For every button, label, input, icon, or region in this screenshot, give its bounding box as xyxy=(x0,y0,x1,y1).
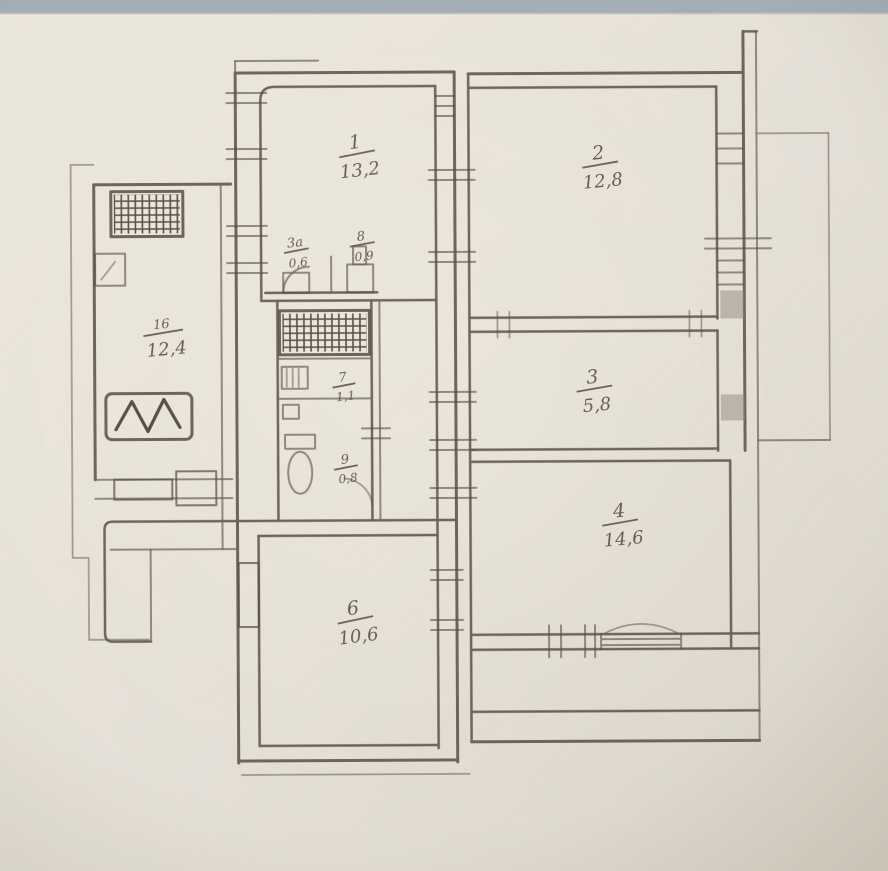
room-number: 3 xyxy=(585,366,599,389)
photographed-floor-plan: 1 13,2 2 12,8 3 5,8 4 14,6 6 10,6 16 12,… xyxy=(0,0,888,871)
room-number: 4 xyxy=(611,500,626,523)
room-area: 12,8 xyxy=(582,169,624,194)
room-number: 2 xyxy=(590,142,605,165)
ventilation-shaft-hatch xyxy=(111,191,183,236)
room-number: 1 xyxy=(348,131,362,154)
room-area: 12,4 xyxy=(146,337,188,362)
room-area: 0,9 xyxy=(354,248,375,264)
room-area: 5,8 xyxy=(582,394,612,418)
room-area: 14,6 xyxy=(603,527,645,552)
room-area: 1,1 xyxy=(335,388,356,404)
photo-background-strip xyxy=(0,0,888,13)
room-number: 8 xyxy=(356,229,366,245)
floor-plan: 1 13,2 2 12,8 3 5,8 4 14,6 6 10,6 16 12,… xyxy=(0,0,888,871)
room-number: 16 xyxy=(153,317,171,333)
kitchen-shaft-hatch xyxy=(279,310,369,354)
room-area: 0,8 xyxy=(338,470,359,486)
room-area: 0,6 xyxy=(288,255,309,271)
room-area: 13,2 xyxy=(339,158,381,183)
room-number: 9 xyxy=(340,452,350,468)
